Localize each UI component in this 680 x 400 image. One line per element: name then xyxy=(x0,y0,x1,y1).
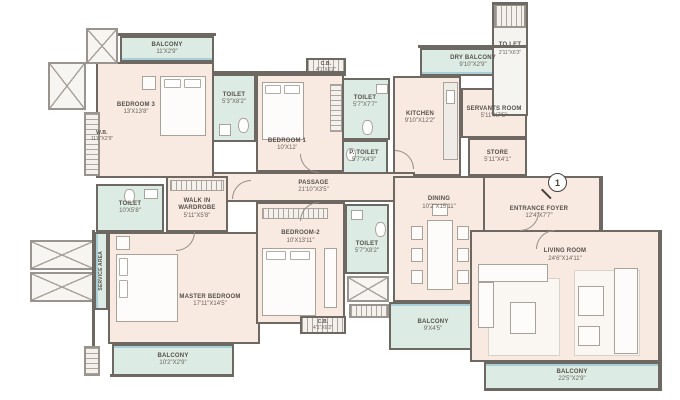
chair-icon xyxy=(432,204,448,216)
toilet-icon xyxy=(375,222,386,237)
wall xyxy=(212,71,346,74)
room-balcony-bedroom3: BALCONY11'X2'9" xyxy=(120,36,214,62)
pillow-icon xyxy=(284,85,300,94)
sofa-icon xyxy=(478,264,548,282)
room-label: BALCONY10'2"X2'9" xyxy=(157,353,188,368)
pillow-icon xyxy=(119,280,128,298)
room-label: BALCONY11'X2'9" xyxy=(151,42,182,57)
room-living-room: LIVING ROOM24'6"X14'11" xyxy=(470,230,660,362)
wall xyxy=(118,33,216,36)
stair-icon xyxy=(84,112,100,176)
lift-shaft-icon xyxy=(86,28,118,64)
room-label: SERVICE AREA xyxy=(98,251,104,291)
room-label: BALCONY9'X4'5" xyxy=(417,319,448,334)
floor-plan: BALCONY11'X2'9" TOILET5'3"X8'2" TOILET5'… xyxy=(0,0,680,400)
chair-icon xyxy=(457,248,469,262)
entrance-marker: 1 xyxy=(548,173,567,192)
pillow-icon xyxy=(184,79,201,88)
room-entrance-foyer: ENTRANCE FOYER12'4"X7'7" xyxy=(477,176,601,232)
wall xyxy=(484,388,662,391)
wardrobe-icon xyxy=(170,180,224,191)
basin-icon xyxy=(219,124,231,136)
room-label: STORE5'11"X4'1" xyxy=(484,150,511,165)
chair-icon xyxy=(411,226,423,240)
dining-table-icon xyxy=(427,220,453,290)
chair-icon xyxy=(457,226,469,240)
room-toilet-bedroom2: TOILET5'7"X8'2" xyxy=(345,204,389,274)
room-walk-in-wardrobe: WALK IN WARDROBE5'11"X5'8" xyxy=(166,176,228,232)
room-toilet-bedroom1: TOILET5'7"X7'7" xyxy=(340,78,390,140)
room-toilet-master: TOILET10'X5'8" xyxy=(96,184,164,232)
lift-shaft-icon xyxy=(30,240,94,270)
pillow-icon xyxy=(164,79,181,88)
room-balcony-master: BALCONY10'2"X2'9" xyxy=(112,344,234,376)
room-balcony-living: BALCONY22'5"X2'9" xyxy=(484,362,660,390)
dresser-icon xyxy=(324,248,337,308)
coffee-table-icon xyxy=(510,302,536,334)
toilet-icon xyxy=(346,148,356,161)
room-powder-toilet: P. TOILET5'7"X4'3" xyxy=(340,140,388,174)
wb-label: W.B.11'6"X2'9" xyxy=(84,130,120,142)
room-label: BEDROOM 313'X13'8" xyxy=(117,102,155,117)
wall xyxy=(418,45,528,48)
pillow-icon xyxy=(265,85,281,94)
room-label: TOILET5'3"X8'2" xyxy=(222,92,246,107)
lift-shaft-icon xyxy=(30,272,94,302)
chair-icon xyxy=(411,248,423,262)
ottoman-icon xyxy=(578,326,600,346)
wall xyxy=(110,374,234,377)
wall xyxy=(92,230,95,346)
pillow-icon xyxy=(290,251,310,260)
pillow-icon xyxy=(266,251,286,260)
room-label: PASSAGE21'10"X3'5" xyxy=(298,180,329,195)
pillow-icon xyxy=(119,258,128,276)
wall xyxy=(658,230,662,390)
toilet-icon xyxy=(362,120,373,135)
room-store: STORE5'11"X4'1" xyxy=(468,138,527,176)
wall xyxy=(492,2,528,5)
sofa-icon xyxy=(478,282,494,328)
room-balcony-middle: BALCONY9'X4'5" xyxy=(389,302,477,350)
lift-shaft-icon xyxy=(48,62,86,110)
room-label: LIVING ROOM24'6"X14'11" xyxy=(544,248,587,263)
room-toilet-bedroom3: TOILET5'3"X8'2" xyxy=(212,74,256,142)
room-label: TOILET5'7"X7'7" xyxy=(353,95,377,110)
stair-icon xyxy=(494,4,526,28)
sofa-icon xyxy=(614,268,638,354)
room-label: MASTER BEDROOM17'11"X14'5" xyxy=(179,294,240,309)
stair-icon xyxy=(349,304,389,318)
wardrobe-icon xyxy=(330,84,342,132)
room-label: WALK IN WARDROBE5'11"X5'8" xyxy=(168,198,226,221)
cupboard-bottom: C.B.4'1"X6'2" xyxy=(300,316,346,334)
room-label: BEDROOM-210'X13'11" xyxy=(281,230,319,245)
room-bedroom-3: BEDROOM 313'X13'8" xyxy=(96,62,214,178)
room-service-area: SERVICE AREA xyxy=(94,232,108,310)
room-label: DRY BALCONY9'10"X2'9" xyxy=(450,55,496,70)
wall xyxy=(599,176,603,232)
basin-icon xyxy=(376,84,388,94)
side-table-icon xyxy=(142,76,156,90)
side-table-icon xyxy=(116,236,130,250)
sink-icon xyxy=(446,90,455,104)
toilet-icon xyxy=(238,118,249,133)
chair-icon xyxy=(411,270,423,284)
basin-icon xyxy=(351,210,363,220)
basin-icon xyxy=(144,189,158,199)
toilet-icon xyxy=(124,189,135,203)
stair-icon xyxy=(84,346,100,376)
room-label: KITCHEN9'10"X12'2" xyxy=(405,111,436,126)
chair-icon xyxy=(457,270,469,284)
room-label: TOILET5'7"X8'2" xyxy=(355,241,379,256)
room-label: C.B.4'1"X6'2" xyxy=(313,319,333,332)
side-table-icon xyxy=(578,286,604,316)
lift-shaft-icon xyxy=(347,276,389,302)
room-label: BALCONY22'5"X2'9" xyxy=(556,369,587,384)
room-label: ENTRANCE FOYER12'4"X7'7" xyxy=(510,206,568,221)
